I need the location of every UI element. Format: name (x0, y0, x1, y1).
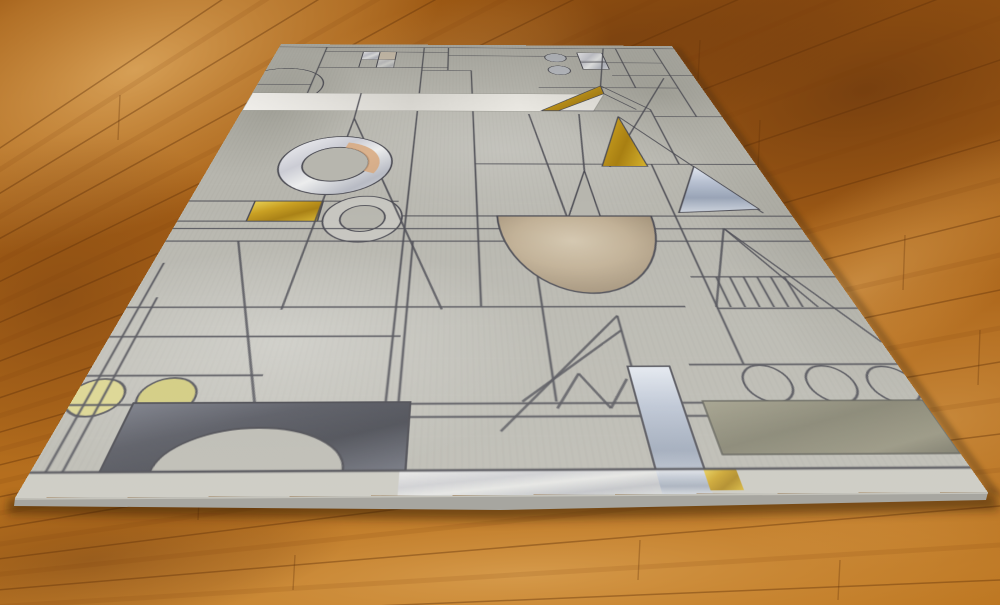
showroom-photo (0, 0, 1000, 605)
wood-floor (0, 0, 1000, 605)
